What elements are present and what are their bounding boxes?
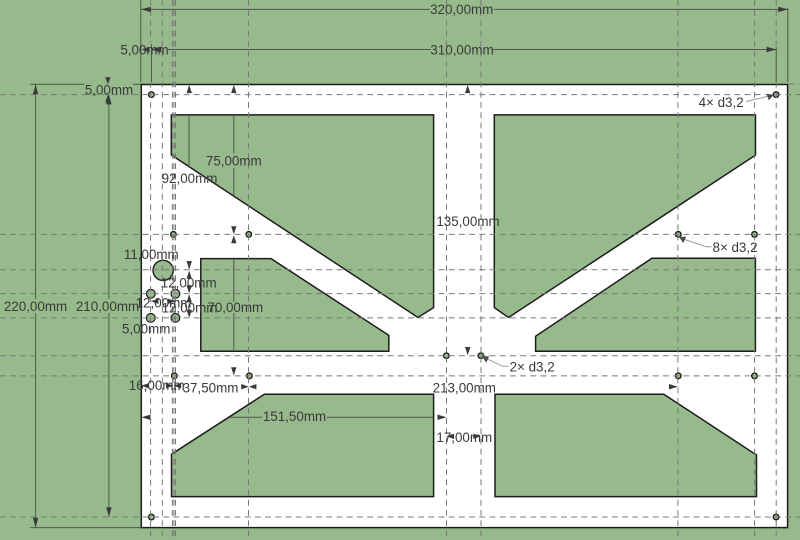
- svg-text:17,00mm: 17,00mm: [436, 430, 492, 445]
- svg-text:213,00mm: 213,00mm: [433, 380, 496, 395]
- svg-text:11,00mm: 11,00mm: [124, 247, 179, 262]
- svg-text:5,00mm: 5,00mm: [122, 322, 170, 337]
- svg-text:8× d3,2: 8× d3,2: [713, 240, 758, 255]
- svg-text:70,00mm: 70,00mm: [207, 300, 263, 315]
- svg-text:75,00mm: 75,00mm: [206, 154, 262, 169]
- svg-text:310,00mm: 310,00mm: [430, 42, 493, 57]
- svg-text:37,50mm: 37,50mm: [183, 381, 239, 396]
- svg-text:151,50mm: 151,50mm: [263, 409, 326, 424]
- svg-text:320,00mm: 320,00mm: [430, 2, 493, 17]
- svg-text:92,00mm: 92,00mm: [162, 171, 218, 186]
- svg-text:5,00mm: 5,00mm: [85, 82, 133, 97]
- svg-text:220,00mm: 220,00mm: [4, 299, 67, 314]
- svg-text:135,00mm: 135,00mm: [436, 214, 499, 229]
- svg-text:12,00mm: 12,00mm: [161, 275, 217, 290]
- svg-text:210,00mm: 210,00mm: [76, 299, 139, 314]
- svg-text:2× d3,2: 2× d3,2: [510, 360, 555, 375]
- svg-text:16,00mm: 16,00mm: [129, 378, 185, 393]
- svg-text:5,00mm: 5,00mm: [120, 42, 168, 57]
- svg-text:4× d3,2: 4× d3,2: [699, 95, 744, 110]
